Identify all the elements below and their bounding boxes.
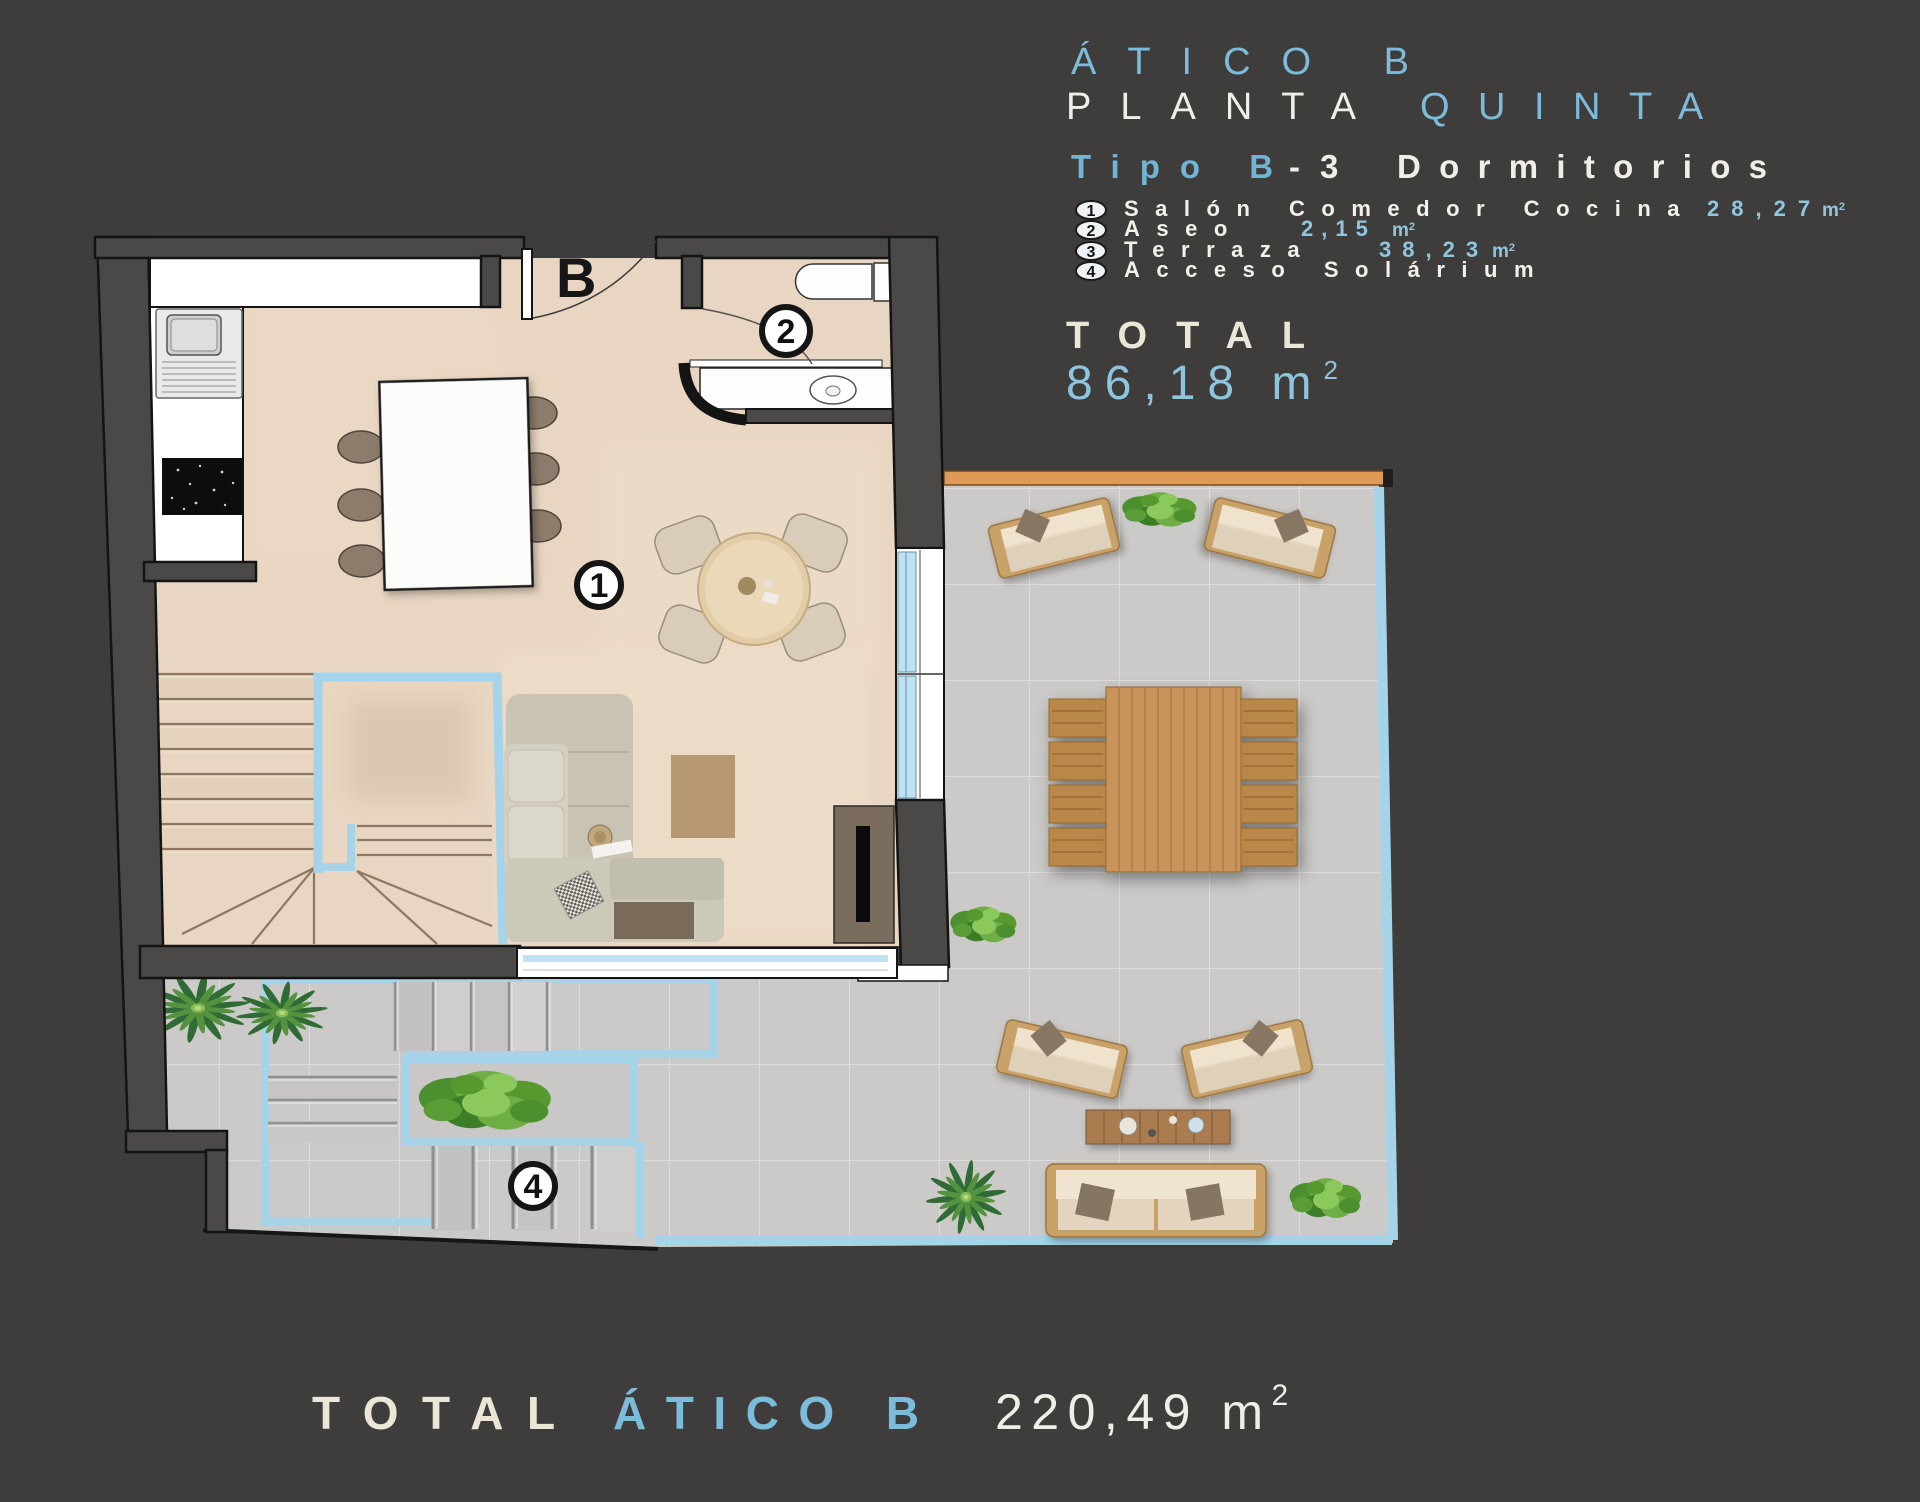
svg-text:3: 3 — [1087, 244, 1096, 261]
svg-text:1: 1 — [1087, 203, 1096, 220]
svg-text:2: 2 — [1087, 223, 1096, 240]
svg-text:4: 4 — [524, 1168, 543, 1206]
svg-text:B: B — [556, 246, 596, 309]
svg-text:1: 1 — [590, 567, 609, 605]
svg-text:28,27m2: 28,27m2 — [1707, 196, 1857, 221]
svg-text:86,18 m2: 86,18 m2 — [1066, 355, 1338, 410]
svg-text:2: 2 — [777, 313, 796, 351]
svg-text:ÁTICO B: ÁTICO B — [613, 1387, 939, 1439]
svg-text:220,49 m2: 220,49 m2 — [995, 1379, 1288, 1440]
svg-text:TOTAL: TOTAL — [1066, 315, 1334, 357]
svg-text:4: 4 — [1087, 264, 1096, 281]
svg-text:TOTAL: TOTAL — [312, 1387, 579, 1439]
svg-text:ÁTICO B: ÁTICO B — [1071, 40, 1440, 83]
svg-text:Acceso Solárium: Acceso Solárium — [1124, 257, 1550, 282]
svg-text:Tipo B-3Dormitorios: Tipo B-3Dormitorios — [1071, 148, 1785, 185]
